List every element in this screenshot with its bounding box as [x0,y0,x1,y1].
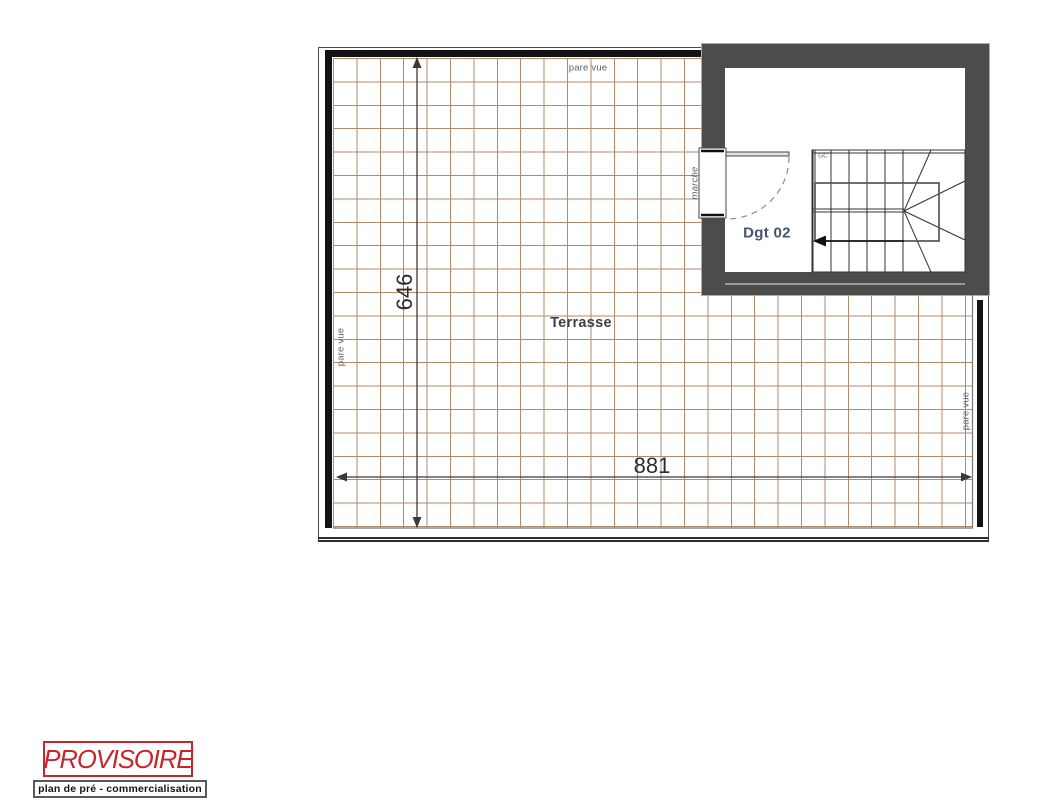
door-leaf [726,152,789,156]
terrace-label: Terrasse [550,315,612,331]
stair-direction-arrow [813,236,904,247]
grid-boundary [333,295,973,528]
plan-linework [0,0,1043,800]
door-swing-arc [727,157,789,219]
plan-type-label: plan de pré - commercialisation [38,783,202,795]
dimension-width-value: 881 [634,453,671,479]
staircase [812,150,965,272]
provisoire-stamp: PROVISOIRE [43,741,193,777]
room-label: Dgt 02 [743,225,791,242]
door [699,148,789,219]
pare-vue-label-left: pare vue [336,328,347,367]
plan-type-box: plan de pré - commercialisation [33,780,207,798]
marche-label: marche [690,167,701,200]
pare-vue-label-right: pare vue [961,392,972,431]
provisoire-stamp-title: PROVISOIRE [44,744,193,775]
pare-vue-label-top: pare vue [569,63,608,74]
stair-note-label: GC [818,153,828,160]
winder-treads [904,150,965,272]
floor-plan-canvas: pare vue pare vue pare vue marche Terras… [0,0,1043,800]
dimension-height-value: 646 [392,274,418,311]
